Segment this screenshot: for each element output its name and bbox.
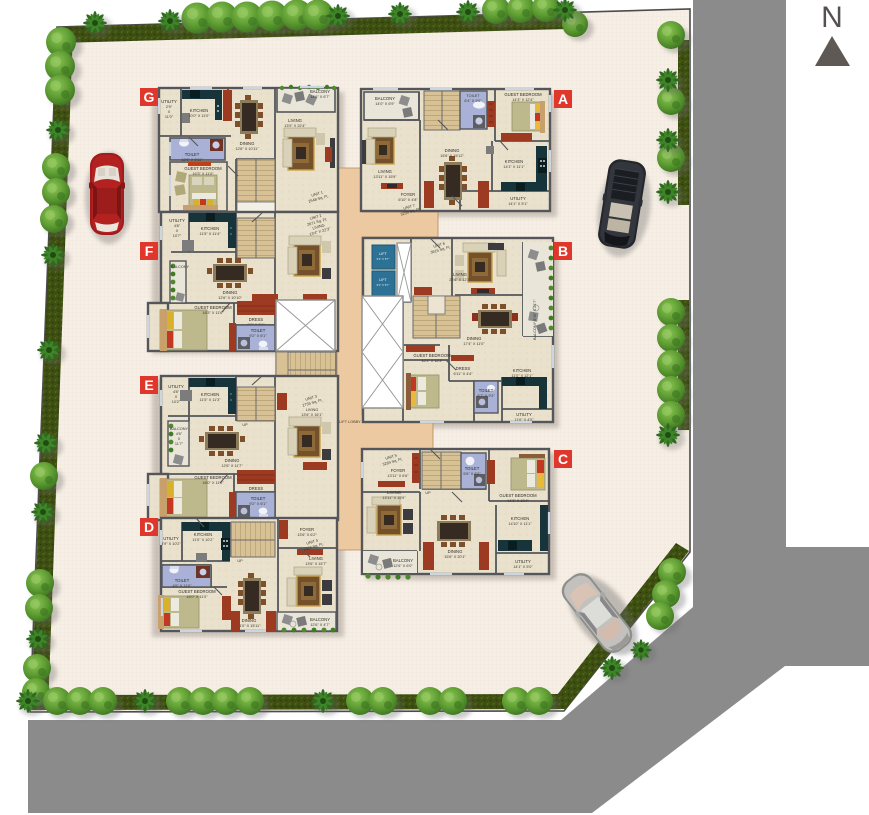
svg-text:6'11" X 4'4": 6'11" X 4'4": [453, 372, 473, 376]
svg-text:BALCONY: BALCONY: [393, 558, 413, 563]
svg-text:4'9" X 10'2": 4'9" X 10'2": [161, 542, 181, 546]
svg-text:DINING: DINING: [445, 148, 460, 153]
svg-text:UTILITY: UTILITY: [516, 412, 532, 417]
svg-text:X: X: [168, 110, 171, 114]
svg-text:12'6" X 10'10": 12'6" X 10'10": [218, 296, 242, 300]
svg-text:BALCONY: BALCONY: [375, 96, 395, 101]
svg-text:LIVING: LIVING: [309, 556, 323, 561]
svg-text:6'10" X 4'8": 6'10" X 4'8": [398, 198, 418, 202]
svg-text:GUEST BEDROOM: GUEST BEDROOM: [504, 92, 542, 97]
svg-text:DINING: DINING: [240, 141, 255, 146]
svg-text:LIVING: LIVING: [453, 272, 467, 277]
svg-text:A: A: [558, 91, 568, 107]
svg-text:BALCONY 6'10" X 24'7": BALCONY 6'10" X 24'7": [533, 299, 537, 340]
svg-text:14'10" X 11'1": 14'10" X 11'1": [508, 522, 532, 526]
svg-text:DINING: DINING: [223, 290, 238, 295]
svg-text:10'0" X 11'0": 10'0" X 11'0": [188, 114, 210, 118]
svg-text:14'1" X 11'1": 14'1" X 11'1": [503, 165, 525, 169]
svg-text:KITCHEN: KITCHEN: [194, 532, 212, 537]
svg-text:UP: UP: [237, 559, 243, 563]
svg-text:GUEST BEDROOM: GUEST BEDROOM: [499, 493, 537, 498]
svg-text:14'3" X 12'4": 14'3" X 12'4": [512, 98, 534, 102]
svg-text:TOILET: TOILET: [251, 496, 266, 501]
svg-text:LIFT: LIFT: [379, 252, 387, 256]
svg-text:6'2" X 5'7": 6'2" X 5'7": [377, 283, 390, 287]
svg-text:LIVING: LIVING: [306, 408, 318, 412]
svg-text:LIVING: LIVING: [378, 169, 392, 174]
svg-text:G: G: [144, 89, 155, 105]
svg-text:TOILET: TOILET: [185, 152, 200, 157]
svg-text:UTILITY: UTILITY: [169, 218, 185, 223]
svg-text:12'6" X 4'7": 12'6" X 4'7": [310, 623, 330, 627]
svg-text:UP: UP: [242, 423, 248, 427]
svg-text:16'3" X 11'6": 16'3" X 11'6": [202, 311, 224, 315]
svg-text:11'0": 11'0": [165, 115, 174, 119]
svg-text:12'6" X 10'11": 12'6" X 10'11": [235, 147, 259, 151]
svg-text:TOILET: TOILET: [251, 328, 266, 333]
svg-text:13'6" X 16'1": 13'6" X 16'1": [301, 413, 323, 417]
svg-text:16'3" X 16'3": 16'3" X 16'3": [421, 359, 443, 363]
svg-text:UTILITY: UTILITY: [168, 384, 184, 389]
svg-text:6'7" X 9'3": 6'7" X 9'3": [477, 394, 495, 398]
svg-text:9'2" X 6'1": 9'2" X 6'1": [249, 502, 267, 506]
svg-text:5'6" X 6'0": 5'6" X 6'0": [463, 472, 481, 476]
svg-text:E: E: [144, 377, 153, 393]
svg-text:BALCONY: BALCONY: [310, 617, 330, 622]
svg-text:16'0" X 11'0": 16'0" X 11'0": [186, 595, 208, 599]
svg-text:4'6": 4'6": [176, 432, 183, 436]
svg-text:9'2" X 6'1": 9'2" X 6'1": [249, 334, 267, 338]
svg-text:13'6" X 15'7": 13'6" X 15'7": [305, 562, 327, 566]
svg-text:D: D: [144, 519, 154, 535]
svg-text:13'6" X 6'2": 13'6" X 6'2": [297, 533, 317, 537]
svg-text:KITCHEN: KITCHEN: [513, 368, 531, 373]
svg-text:11'0" X 12'1": 11'0" X 12'1": [511, 374, 533, 378]
svg-text:11'5" X 11'3": 11'5" X 11'3": [200, 398, 222, 402]
svg-text:2'9": 2'9": [166, 105, 173, 109]
svg-text:10'2": 10'2": [172, 400, 181, 404]
svg-text:GUEST BEDROOM: GUEST BEDROOM: [184, 166, 222, 171]
svg-text:10'7": 10'7": [173, 234, 182, 238]
svg-text:TOILET: TOILET: [465, 466, 480, 471]
svg-text:KITCHEN: KITCHEN: [505, 159, 523, 164]
svg-text:X: X: [178, 437, 181, 441]
svg-text:FOYER: FOYER: [401, 192, 415, 197]
svg-text:BALCONY: BALCONY: [170, 427, 189, 431]
svg-text:14'1" X 5'0": 14'1" X 5'0": [513, 565, 533, 569]
svg-text:13'11" X 15'9": 13'11" X 15'9": [382, 496, 406, 500]
svg-text:KITCHEN: KITCHEN: [190, 108, 208, 113]
svg-text:UTILITY: UTILITY: [161, 99, 177, 104]
svg-text:14'1" X 5'1": 14'1" X 5'1": [508, 202, 528, 206]
svg-text:4'8": 4'8": [173, 390, 180, 394]
svg-text:13'11" X 15'9": 13'11" X 15'9": [373, 175, 397, 179]
svg-text:14'6" X 6'7": 14'6" X 6'7": [310, 95, 330, 99]
svg-text:11'0" X 10'2": 11'0" X 10'2": [192, 538, 214, 542]
svg-text:DINING: DINING: [225, 458, 240, 463]
svg-text:BALCONY: BALCONY: [171, 265, 190, 269]
svg-text:LIVING: LIVING: [288, 118, 302, 123]
svg-text:B: B: [558, 243, 568, 259]
svg-text:KITCHEN: KITCHEN: [201, 392, 219, 397]
svg-text:UTILITY: UTILITY: [163, 536, 179, 541]
svg-text:16'3" X 11'0": 16'3" X 11'0": [192, 172, 214, 176]
svg-text:X: X: [175, 395, 178, 399]
svg-text:FOYER: FOYER: [391, 468, 405, 473]
svg-text:TOILET: TOILET: [466, 94, 480, 98]
svg-text:LIFT LOBBY: LIFT LOBBY: [339, 420, 361, 424]
svg-text:14'0" X 6'9": 14'0" X 6'9": [375, 102, 395, 106]
svg-text:15'6" X 20'1": 15'6" X 20'1": [444, 555, 466, 559]
svg-text:BALCONY: BALCONY: [310, 89, 330, 94]
svg-text:DINING: DINING: [448, 549, 463, 554]
svg-text:6'4" X 9'0": 6'4" X 9'0": [464, 99, 482, 103]
svg-text:KITCHEN: KITCHEN: [511, 516, 529, 521]
svg-text:UP: UP: [425, 491, 431, 495]
svg-text:26'6" X 12'3": 26'6" X 12'3": [449, 278, 471, 282]
svg-text:FOYER: FOYER: [300, 527, 314, 532]
svg-text:UTILITY: UTILITY: [515, 559, 531, 564]
svg-text:GUEST BEDROOM: GUEST BEDROOM: [178, 589, 216, 594]
svg-text:DRESS: DRESS: [456, 366, 471, 371]
svg-text:DINING: DINING: [242, 618, 257, 623]
svg-text:KITCHEN: KITCHEN: [201, 226, 219, 231]
svg-text:12'6" X 6'0": 12'6" X 6'0": [393, 564, 413, 568]
svg-text:14'3" X 12'4": 14'3" X 12'4": [507, 499, 529, 503]
svg-text:TOILET: TOILET: [479, 388, 494, 393]
svg-text:UTILITY: UTILITY: [510, 196, 526, 201]
svg-text:12'6" X 11'7": 12'6" X 11'7": [221, 464, 243, 468]
svg-text:N: N: [821, 1, 843, 34]
svg-text:4'8": 4'8": [174, 224, 181, 228]
svg-text:DINING: DINING: [467, 336, 482, 341]
svg-text:4'9" X 11'0": 4'9" X 11'0": [172, 584, 192, 588]
svg-text:11'0" X 15'11": 11'0" X 15'11": [237, 624, 261, 628]
svg-text:6'2" X 5'7": 6'2" X 5'7": [377, 257, 390, 261]
svg-text:DRESS: DRESS: [249, 486, 264, 491]
svg-text:LIVING: LIVING: [387, 490, 401, 495]
svg-text:LIFT: LIFT: [379, 278, 387, 282]
svg-text:11'7": 11'7": [175, 442, 184, 446]
svg-text:TOILET: TOILET: [175, 578, 190, 583]
svg-text:15'6" X 15'12": 15'6" X 15'12": [440, 154, 464, 158]
svg-text:17'4" X 11'0": 17'4" X 11'0": [463, 342, 485, 346]
svg-text:GUEST BEDROOM: GUEST BEDROOM: [413, 353, 451, 358]
svg-text:13'11" X 6'6": 13'11" X 6'6": [387, 474, 409, 478]
svg-text:X: X: [176, 229, 179, 233]
svg-text:DRESS: DRESS: [249, 317, 264, 322]
svg-text:11'5" X 11'4": 11'5" X 11'4": [200, 232, 222, 236]
svg-text:F: F: [145, 243, 154, 259]
svg-text:13'9" X 22'4": 13'9" X 22'4": [284, 124, 306, 128]
svg-text:C: C: [558, 451, 568, 467]
